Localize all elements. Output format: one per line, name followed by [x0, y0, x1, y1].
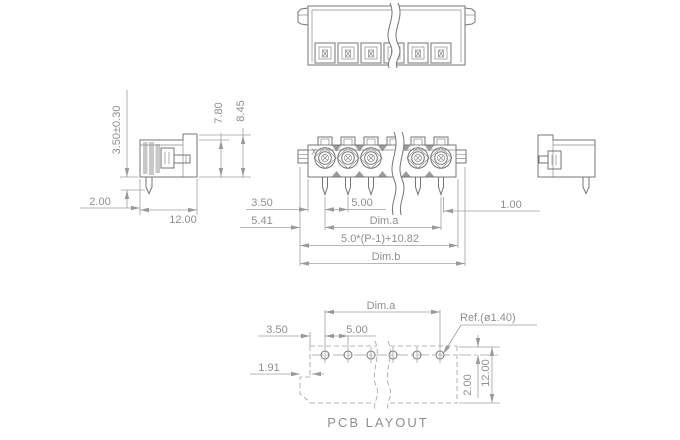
clamp-screw	[539, 151, 561, 169]
dim-hole-pitch: 5.00	[346, 324, 367, 336]
pcb-layout-title: PCB LAYOUT	[327, 415, 428, 430]
clamp-screw	[161, 148, 190, 168]
front-view-dimensions: 3.50 5.00 1.00 5.41 Dim.a 5.0*(P-1)+10.8…	[240, 167, 540, 266]
technical-drawing: 3.50±0.30 2.00 12.00 7.80 8.45	[0, 0, 680, 440]
dim-overall: Dim.b	[372, 251, 401, 263]
dim-total-height: 8.45	[235, 100, 247, 121]
pcb-layout: Dim.a Ref.(ø1.40) 3.50 5.00 1.91 2.00 12…	[250, 300, 537, 430]
top-view	[298, 3, 475, 68]
hole-ref-label: Ref.(ø1.40)	[460, 312, 516, 324]
flange-right-edge	[456, 150, 466, 163]
polarity-mark: X	[311, 147, 317, 157]
footprint-notch	[300, 377, 310, 402]
mount-flange-left	[298, 8, 308, 25]
dim-row-offset: 2.00	[462, 374, 474, 395]
dim-edge-to-hole: 3.50	[266, 324, 287, 336]
dim-pin-width: 1.00	[500, 199, 521, 211]
top-tabs	[318, 137, 448, 145]
dim-depth: 12.00	[169, 214, 197, 226]
dim-front-height: 7.80	[213, 102, 225, 123]
mount-flange-right	[465, 8, 475, 25]
side-view-left: 3.50±0.30 2.00 12.00 7.80 8.45	[80, 90, 251, 226]
dim-length-formula: 5.0*(P-1)+10.82	[341, 233, 419, 245]
dim-pitch: 5.00	[351, 197, 372, 209]
solder-pins	[323, 177, 444, 195]
drawing-canvas: 3.50±0.30 2.00 12.00 7.80 8.45	[0, 0, 680, 440]
dim-pin-length: 3.50±0.30	[111, 106, 123, 155]
dim-span: Dim.a	[370, 215, 400, 227]
side-view-right	[538, 135, 595, 194]
solder-pin	[583, 177, 589, 194]
dim-footprint-depth: 12.00	[480, 359, 492, 387]
dim-offset: 5.41	[251, 215, 272, 227]
dim-hole-span: Dim.a	[367, 300, 397, 312]
front-view: X 3.50 5.00 1.	[240, 132, 540, 266]
product-marking	[143, 142, 160, 175]
solder-pin	[146, 177, 152, 194]
dim-notch-offset: 1.91	[258, 362, 279, 374]
wire-clamps	[315, 43, 451, 63]
dim-pin-tip: 2.00	[89, 196, 110, 208]
flange-left-edge	[298, 150, 308, 163]
side-view-dimensions: 3.50±0.30 2.00 12.00 7.80 8.45	[80, 90, 251, 226]
dim-edge-to-pin: 3.50	[251, 197, 272, 209]
